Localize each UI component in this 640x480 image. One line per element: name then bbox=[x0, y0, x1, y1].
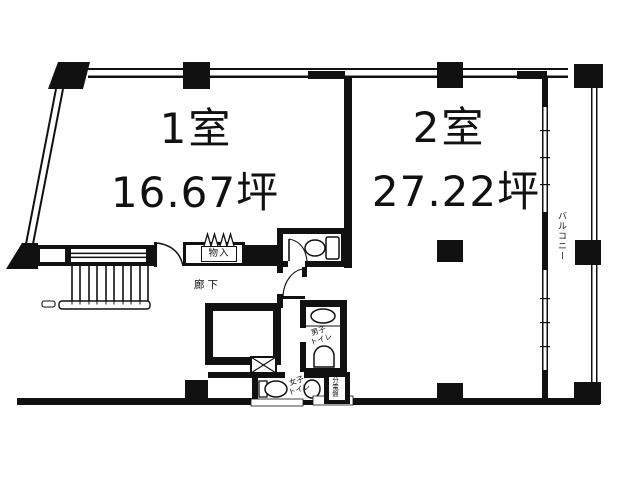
upper-toilet-room bbox=[277, 228, 347, 267]
west-slant-window bbox=[26, 89, 63, 244]
room1-area-label: 16.67坪 bbox=[65, 172, 325, 214]
column-wedge bbox=[6, 243, 38, 269]
stair-landing bbox=[59, 301, 150, 309]
elevator-shaft bbox=[205, 303, 281, 365]
column bbox=[183, 62, 210, 89]
floor-plan: 1室 16.67坪 2室 27.22坪 物入 廊下 男子 トイレ 女子 トイレ … bbox=[0, 0, 640, 480]
bifold-door bbox=[220, 234, 234, 246]
room2-area-label: 27.22坪 bbox=[326, 171, 586, 213]
stairs bbox=[42, 266, 150, 309]
bifold-door bbox=[204, 234, 218, 246]
column bbox=[574, 64, 603, 88]
column bbox=[437, 62, 463, 88]
corridor-label: 廊下 bbox=[194, 280, 221, 291]
stair-landing-end bbox=[42, 301, 55, 307]
electrical-panel-label: 分電盤 bbox=[331, 377, 338, 401]
room1-name-label: 1室 bbox=[86, 108, 306, 150]
urinal bbox=[314, 346, 334, 367]
storage-label: 物入 bbox=[201, 246, 237, 262]
column bbox=[48, 62, 90, 89]
corridor-door bbox=[283, 269, 305, 299]
pipe-shaft bbox=[251, 357, 276, 373]
toilet-bowl bbox=[305, 240, 325, 256]
column bbox=[437, 240, 463, 262]
toilet-tank bbox=[326, 237, 339, 259]
column bbox=[437, 383, 463, 404]
entrance-door bbox=[154, 242, 183, 267]
threshold bbox=[251, 399, 303, 406]
room2-name-label: 2室 bbox=[339, 107, 559, 149]
floor-plan-drawing bbox=[0, 0, 640, 480]
top-wall-window bbox=[88, 68, 568, 79]
sink bbox=[311, 309, 335, 323]
balcony-label: バルコニー bbox=[556, 211, 565, 271]
column bbox=[185, 380, 208, 404]
